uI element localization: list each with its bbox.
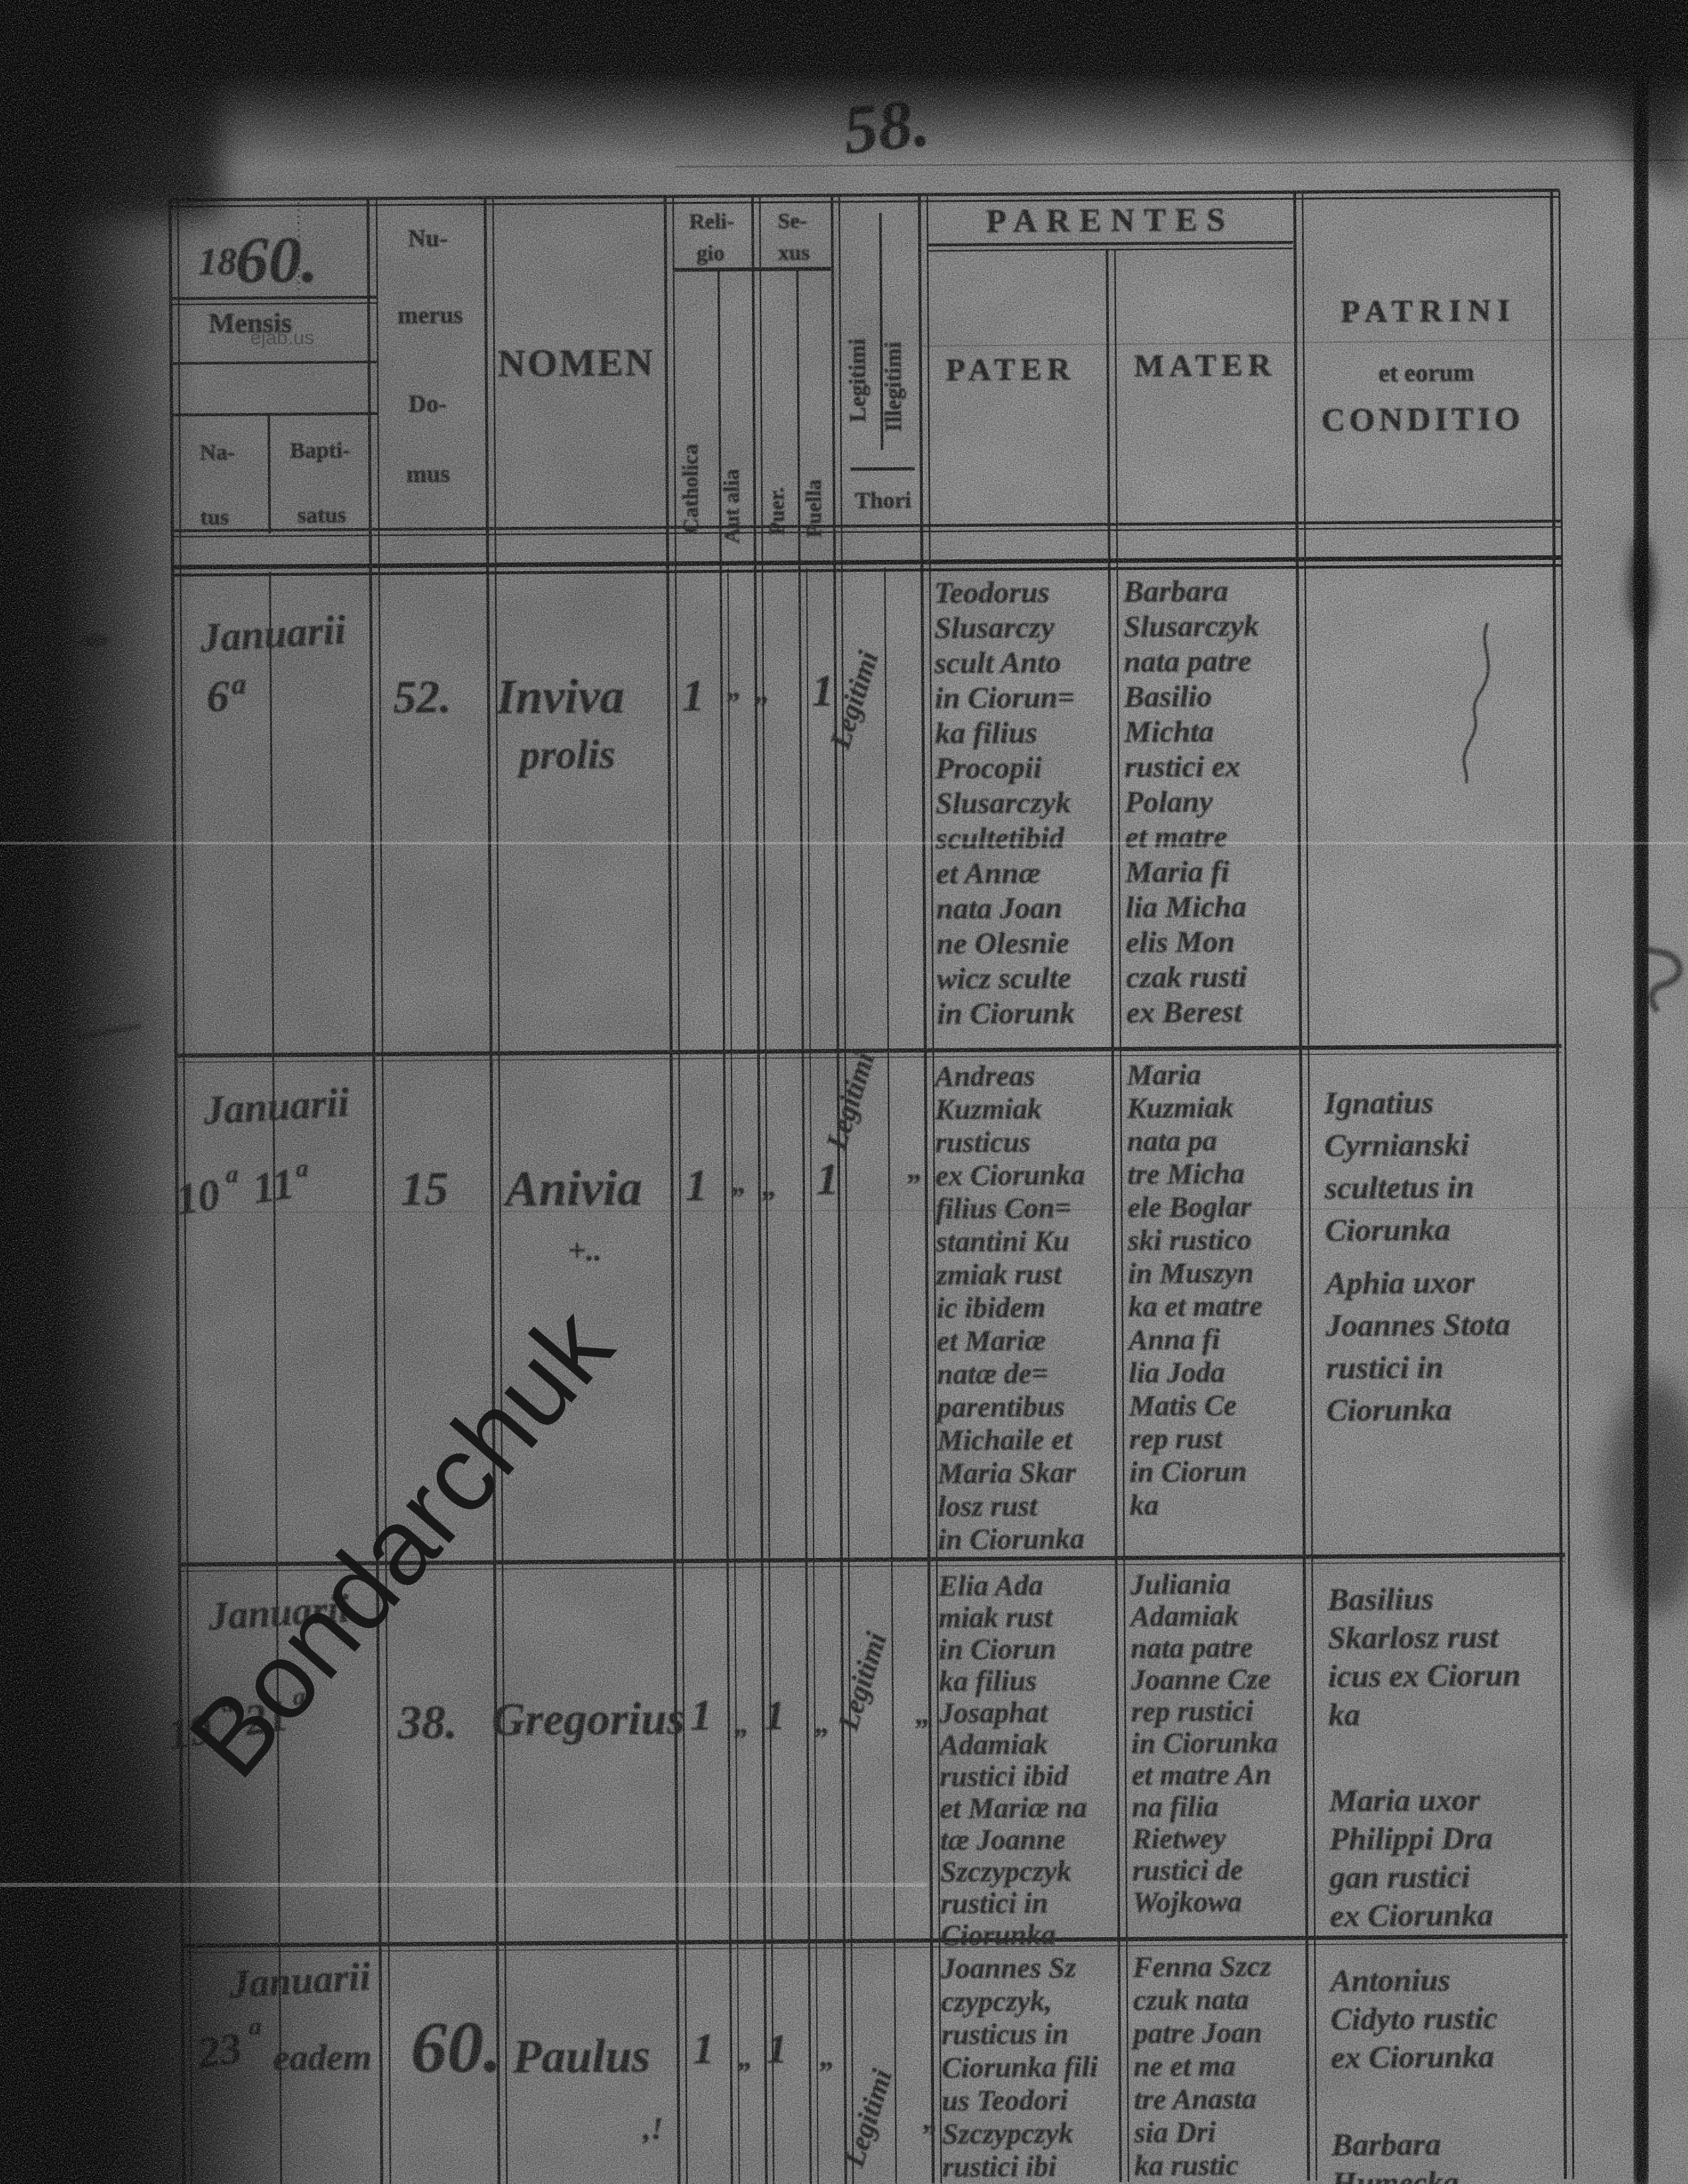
- svg-text:ejab.us: ejab.us: [250, 327, 314, 349]
